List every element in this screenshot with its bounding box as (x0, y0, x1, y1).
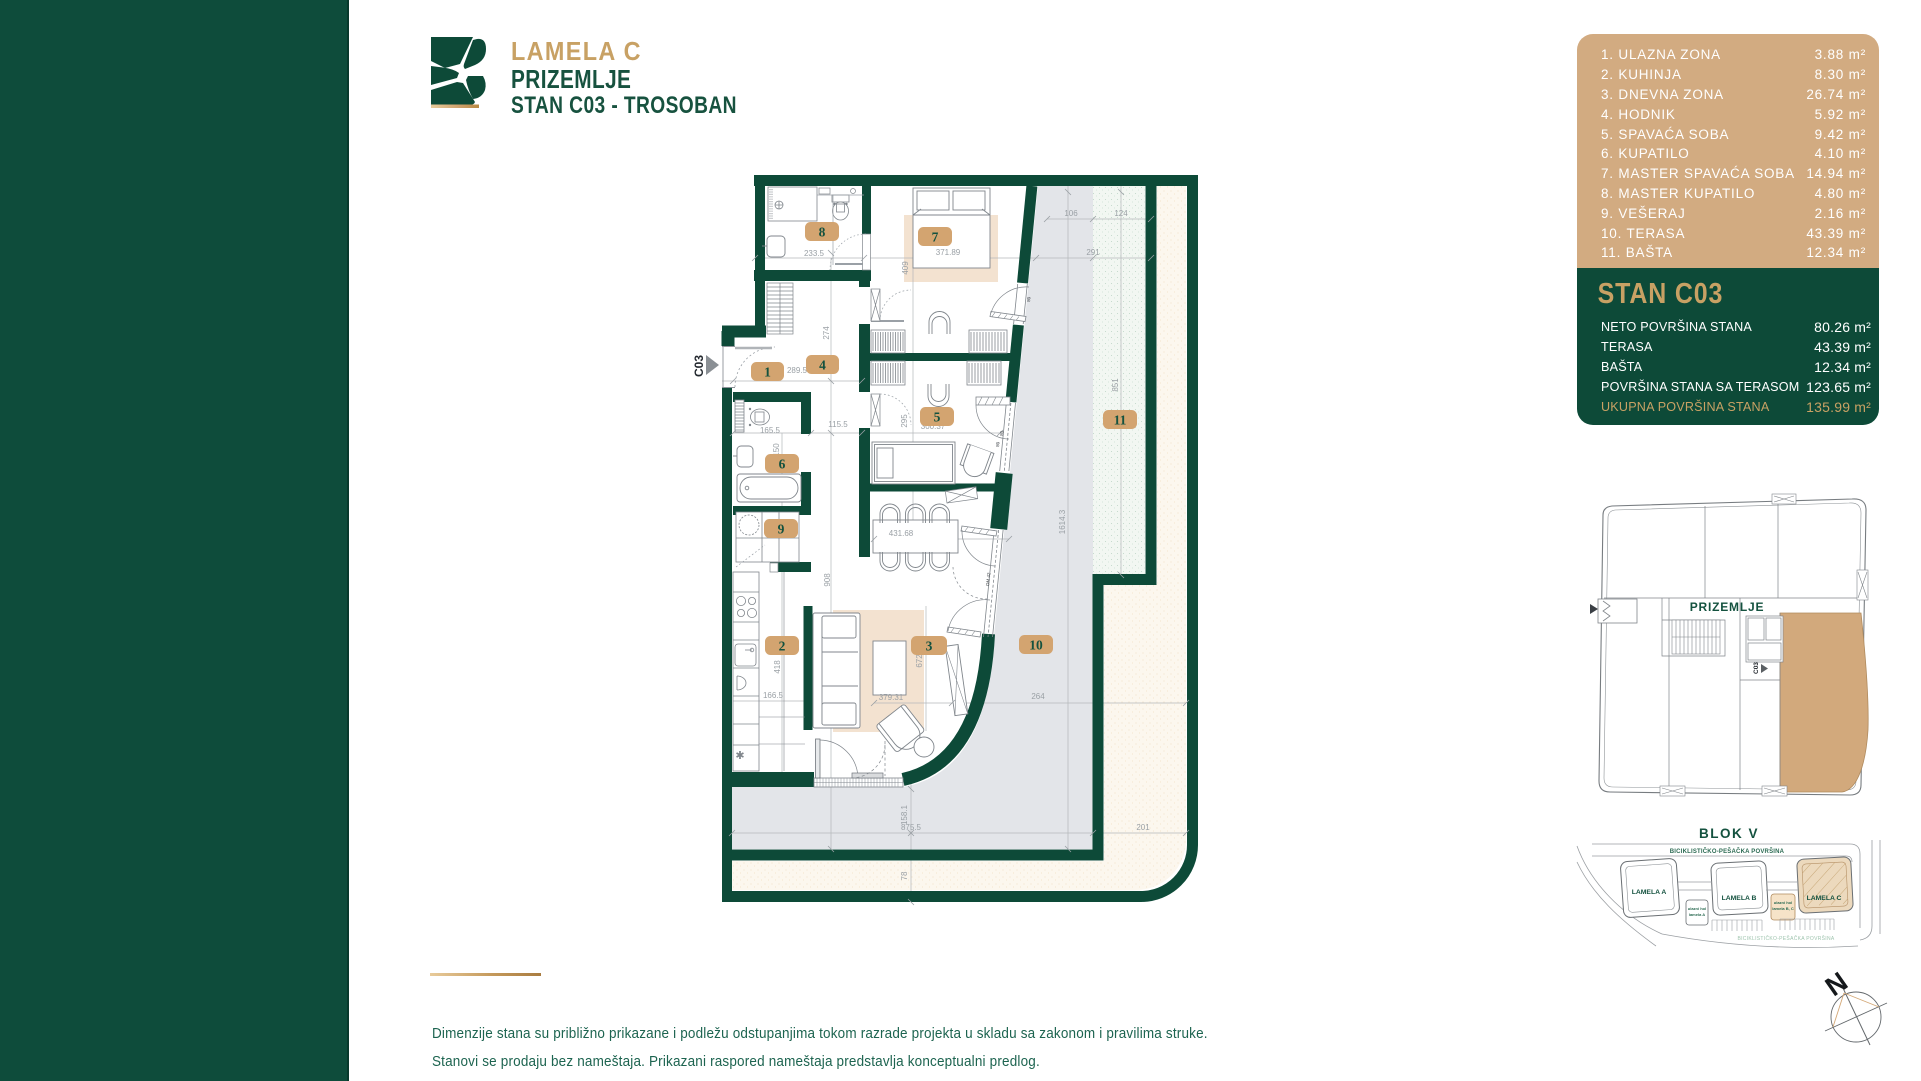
svg-text:4: 4 (819, 358, 826, 373)
svg-text:233.5: 233.5 (804, 249, 825, 258)
svg-text:124: 124 (1114, 209, 1128, 218)
svg-text:8: 8 (819, 225, 826, 240)
svg-text:3: 3 (926, 639, 933, 654)
svg-text:ulazni hol: ulazni hol (1774, 900, 1792, 905)
svg-text:289.5: 289.5 (787, 366, 808, 375)
svg-text:908: 908 (823, 573, 832, 587)
svg-text:lamela A: lamela A (1689, 912, 1705, 917)
svg-text:lamela B, C: lamela B, C (1772, 906, 1794, 911)
svg-text:1: 1 (764, 365, 771, 380)
svg-text:158.1: 158.1 (900, 804, 909, 825)
svg-text:80: 80 (1026, 296, 1031, 302)
svg-text:431.68: 431.68 (889, 529, 914, 538)
svg-text:N: N (1820, 966, 1853, 1002)
svg-text:LAMELA C: LAMELA C (1807, 895, 1842, 902)
svg-text:10: 10 (1029, 638, 1043, 653)
svg-text:274: 274 (822, 326, 831, 340)
svg-text:1614.3: 1614.3 (1058, 509, 1067, 534)
svg-text:ulazni hol: ulazni hol (1688, 906, 1706, 911)
svg-text:295: 295 (900, 414, 909, 428)
svg-text:672: 672 (915, 654, 924, 668)
svg-text:2: 2 (779, 639, 786, 654)
svg-text:BLOK V: BLOK V (1699, 826, 1759, 841)
svg-text:C03: C03 (692, 355, 706, 377)
svg-text:78: 78 (900, 871, 909, 880)
svg-text:80: 80 (995, 441, 1000, 447)
svg-text:166.5: 166.5 (763, 691, 784, 700)
svg-text:BICIKLISTIČKO-PEŠAČKA POVRŠINA: BICIKLISTIČKO-PEŠAČKA POVRŠINA (1737, 935, 1834, 942)
svg-text:11: 11 (1114, 413, 1127, 428)
svg-text:106: 106 (1064, 209, 1078, 218)
svg-text:80: 80 (999, 430, 1004, 436)
svg-text:✱: ✱ (735, 750, 744, 762)
svg-text:115.5: 115.5 (828, 420, 848, 429)
svg-text:291: 291 (1086, 248, 1100, 257)
svg-text:201: 201 (1136, 823, 1150, 832)
svg-text:BICIKLISTIČKO-PEŠAČKA POVRŠINA: BICIKLISTIČKO-PEŠAČKA POVRŠINA (1670, 847, 1785, 855)
svg-text:165.5: 165.5 (760, 426, 781, 435)
svg-text:851: 851 (1111, 378, 1120, 392)
svg-text:5: 5 (934, 410, 941, 425)
svg-text:DM 42: DM 42 (985, 572, 991, 586)
svg-text:PRIZEMLJE: PRIZEMLJE (1690, 600, 1765, 614)
svg-text:LAMELA A: LAMELA A (1632, 889, 1667, 896)
svg-text:7: 7 (932, 230, 939, 245)
svg-text:264: 264 (1031, 692, 1045, 701)
svg-text:379.31: 379.31 (879, 693, 904, 702)
svg-text:418: 418 (773, 660, 782, 674)
svg-text:C03: C03 (1753, 662, 1760, 674)
svg-text:LAMELA B: LAMELA B (1722, 895, 1757, 902)
svg-text:9: 9 (778, 522, 785, 537)
svg-text:371.89: 371.89 (936, 248, 961, 257)
svg-text:6: 6 (779, 457, 786, 472)
svg-text:409: 409 (901, 261, 910, 275)
